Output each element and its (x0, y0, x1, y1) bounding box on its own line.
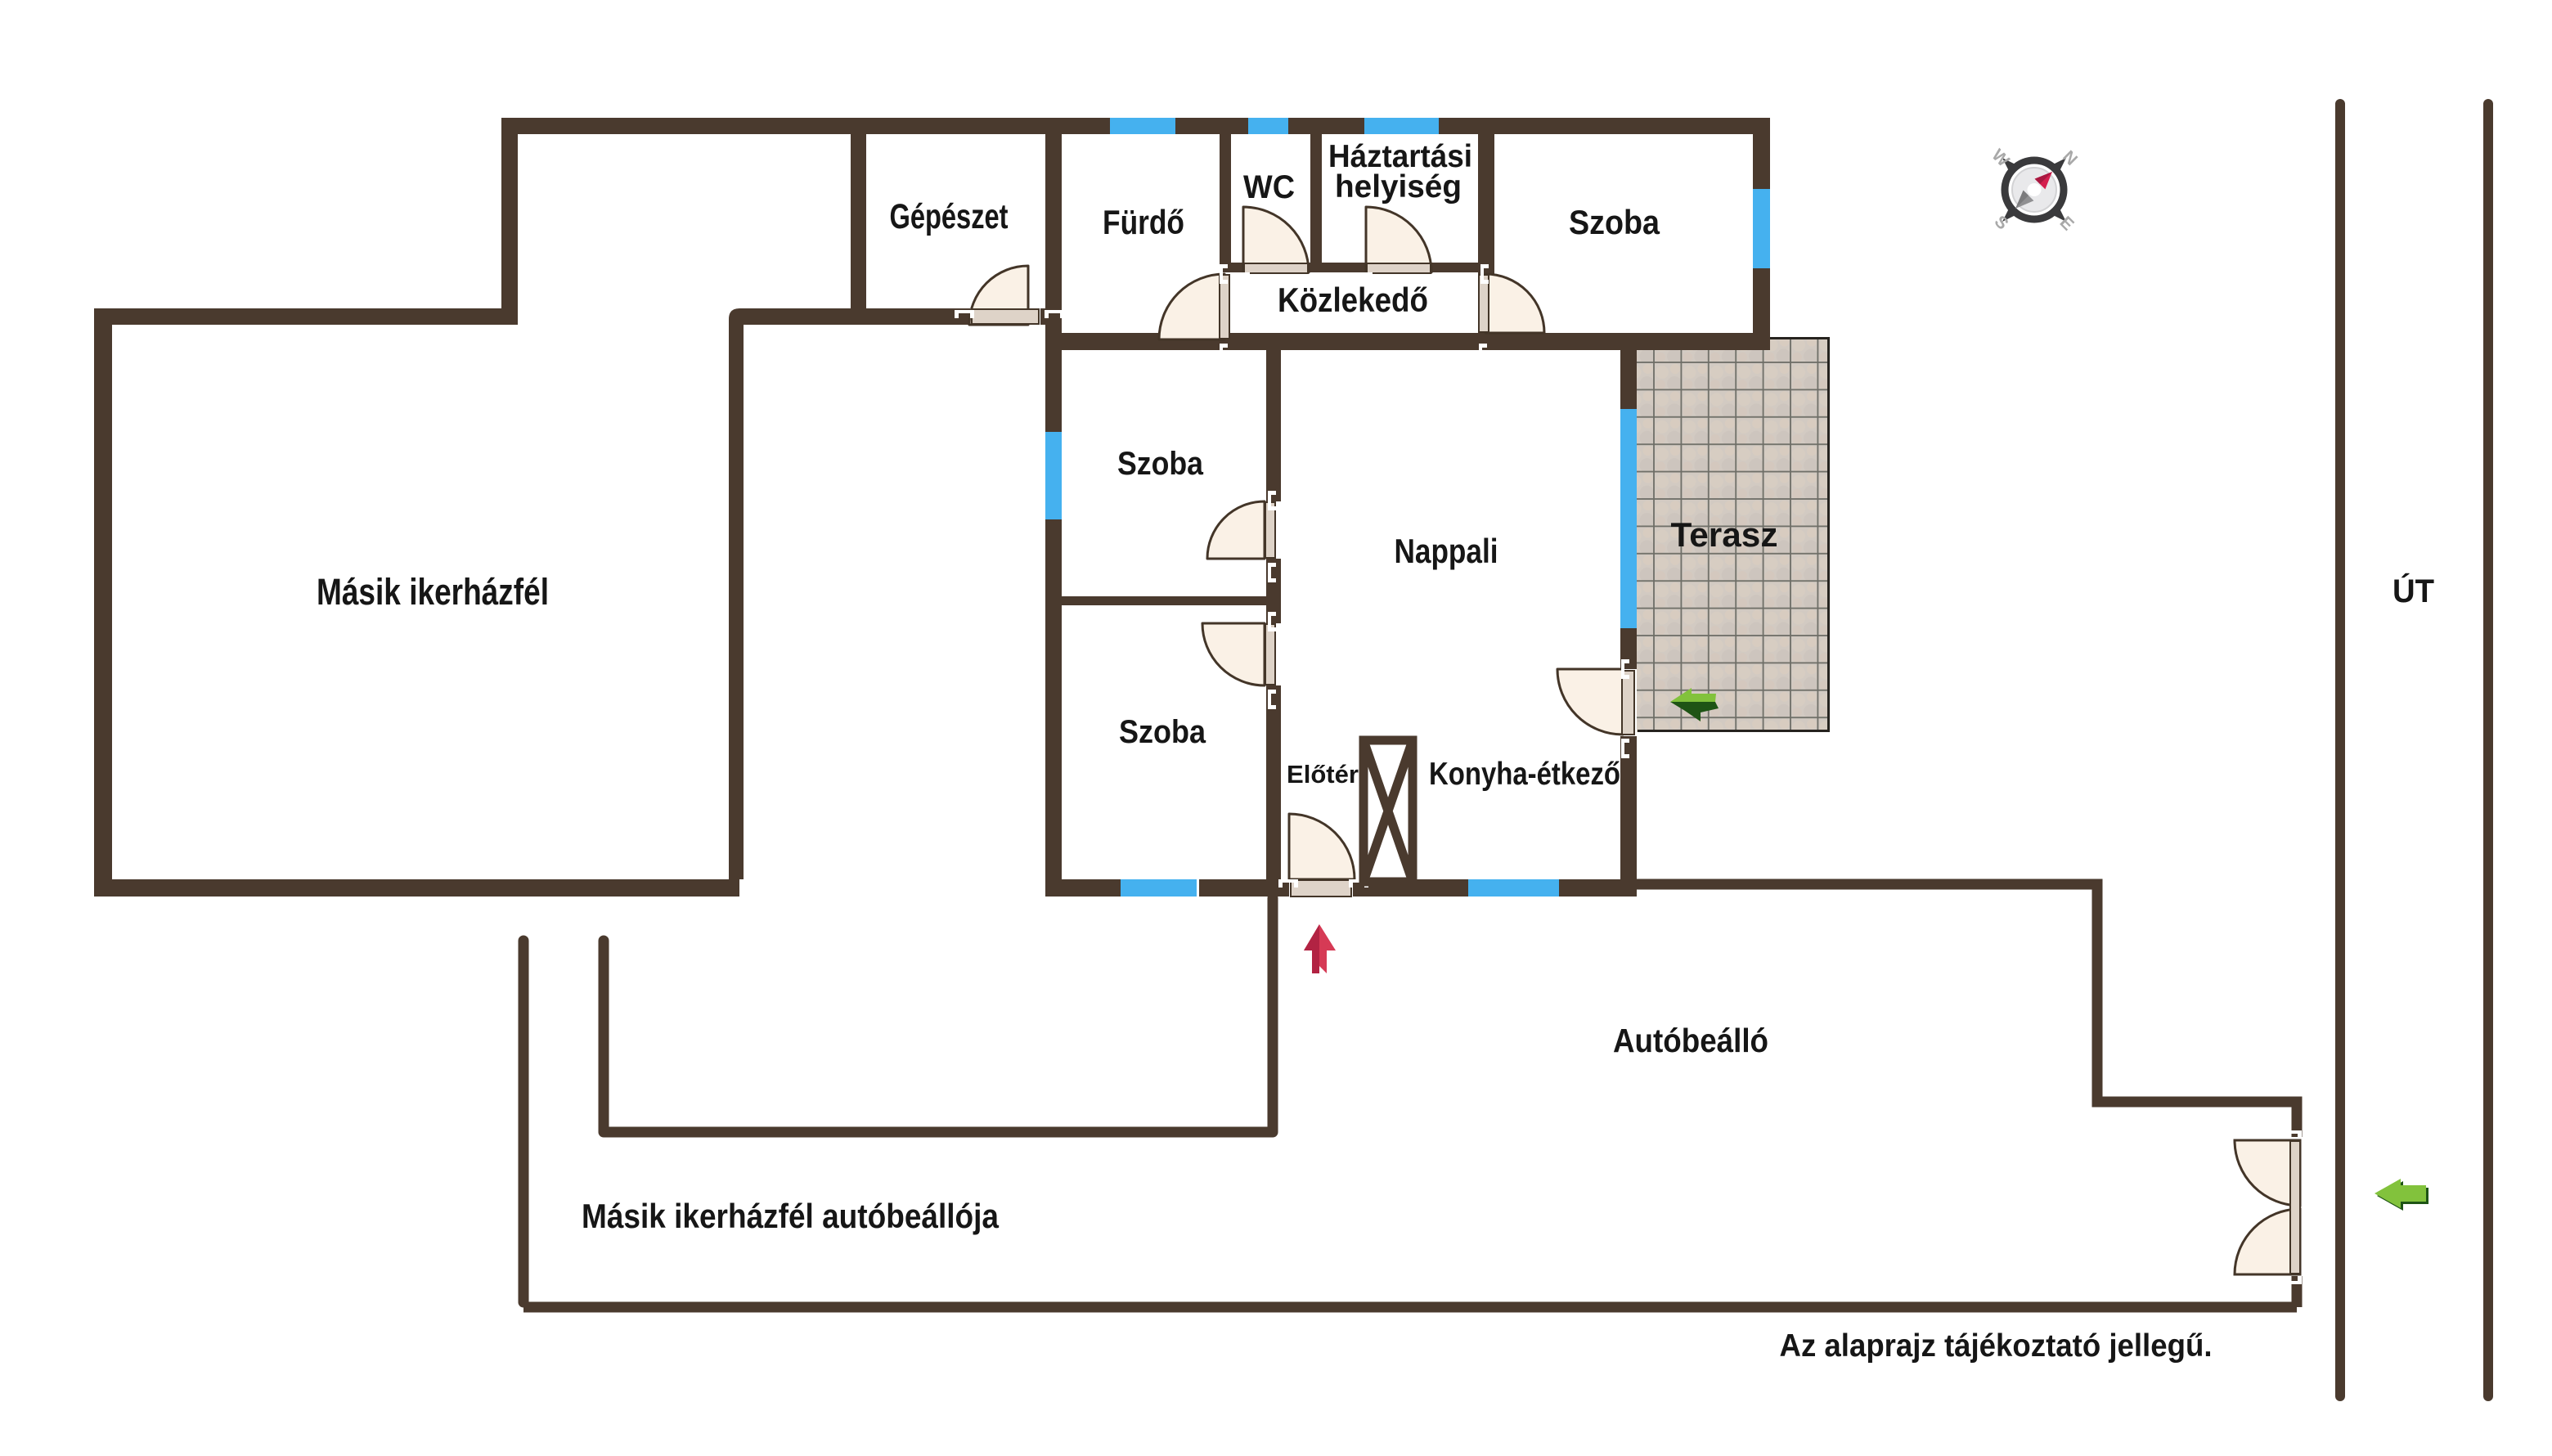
svg-text:Nappali: Nappali (1395, 532, 1498, 570)
svg-text:Szoba: Szoba (1569, 203, 1660, 241)
svg-text:Gépészet: Gépészet (890, 197, 1009, 236)
svg-text:Fürdő: Fürdő (1103, 203, 1184, 241)
svg-text:Szoba: Szoba (1117, 446, 1204, 482)
svg-text:Terasz: Terasz (1671, 515, 1778, 554)
svg-text:Másik ikerházfél autóbeállója: Másik ikerházfél autóbeállója (582, 1197, 1000, 1235)
svg-text:ÚT: ÚT (2392, 572, 2434, 609)
svg-text:Másik ikerházfél: Másik ikerházfél (317, 571, 549, 613)
svg-text:Szoba: Szoba (1119, 714, 1206, 750)
svg-text:N: N (2059, 147, 2081, 169)
svg-text:Előtér: Előtér (1287, 760, 1359, 789)
svg-text:Közlekedő: Közlekedő (1278, 281, 1428, 319)
svg-text:Konyha-étkező: Konyha-étkező (1429, 757, 1620, 792)
svg-text:Az alaprajz tájékoztató jelleg: Az alaprajz tájékoztató jellegű. (1780, 1328, 2213, 1364)
svg-text:helyiség: helyiség (1335, 169, 1462, 204)
svg-text:Autóbeálló: Autóbeálló (1613, 1022, 1768, 1059)
svg-text:WC: WC (1243, 169, 1295, 205)
